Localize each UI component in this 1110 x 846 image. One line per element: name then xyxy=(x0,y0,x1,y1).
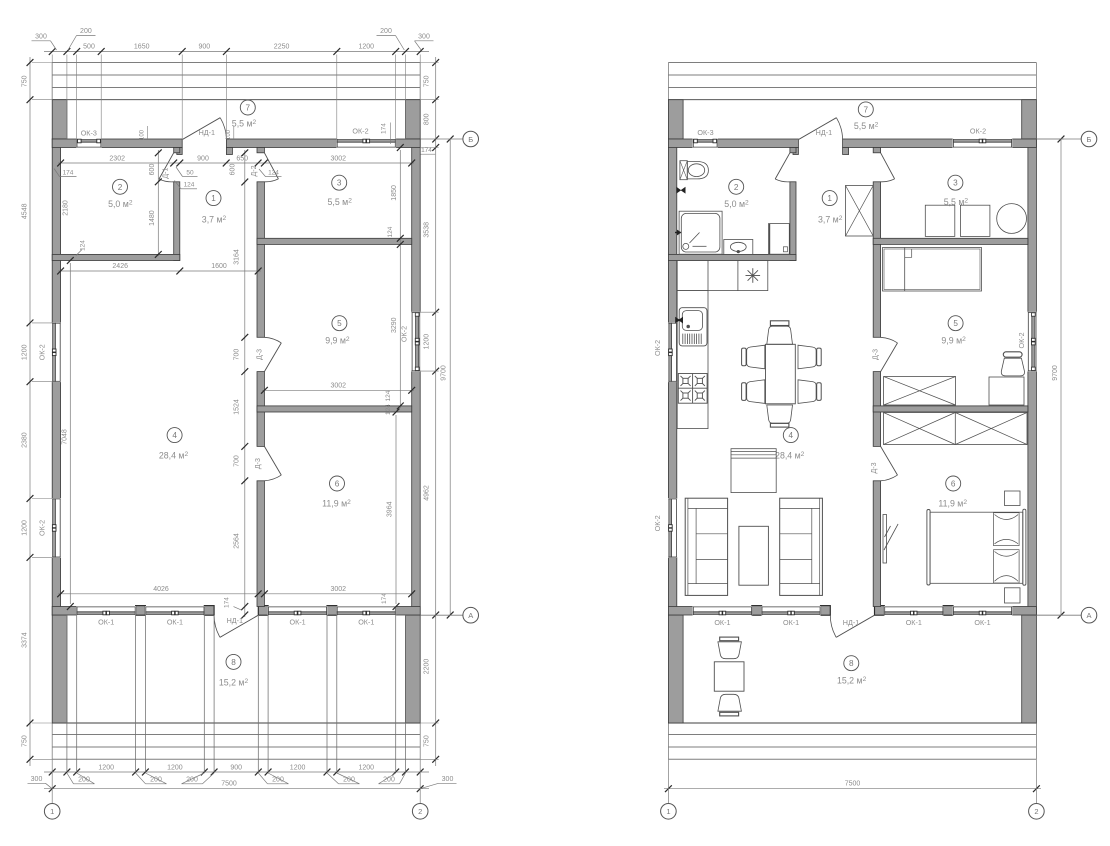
svg-text:300: 300 xyxy=(31,776,43,783)
svg-text:750: 750 xyxy=(424,735,431,747)
svg-text:700: 700 xyxy=(234,455,241,467)
svg-text:900: 900 xyxy=(197,155,209,162)
svg-text:А: А xyxy=(468,611,473,620)
svg-text:200: 200 xyxy=(343,777,355,784)
svg-text:ОК-1: ОК-1 xyxy=(290,618,306,627)
svg-text:28,4 м2: 28,4 м2 xyxy=(775,451,805,461)
svg-text:200: 200 xyxy=(186,777,198,784)
svg-text:11,9 м2: 11,9 м2 xyxy=(322,499,351,509)
svg-text:1200: 1200 xyxy=(22,520,29,536)
svg-text:1850: 1850 xyxy=(391,185,398,201)
svg-text:900: 900 xyxy=(198,44,210,51)
svg-text:ОК-1: ОК-1 xyxy=(783,618,799,627)
svg-text:3164: 3164 xyxy=(234,249,241,265)
svg-text:7500: 7500 xyxy=(845,781,861,788)
svg-text:9700: 9700 xyxy=(1052,365,1059,381)
svg-text:ОК-2: ОК-2 xyxy=(352,127,368,136)
svg-text:3538: 3538 xyxy=(424,222,431,238)
svg-text:8: 8 xyxy=(231,658,236,667)
svg-text:ОК-1: ОК-1 xyxy=(358,618,374,627)
svg-text:7500: 7500 xyxy=(221,781,237,788)
svg-text:3290: 3290 xyxy=(391,317,398,333)
svg-text:ОК-2: ОК-2 xyxy=(400,326,409,342)
svg-text:3: 3 xyxy=(337,179,342,188)
svg-text:3002: 3002 xyxy=(331,586,347,593)
svg-text:Б: Б xyxy=(468,135,473,144)
svg-text:124: 124 xyxy=(184,182,195,189)
svg-text:Д-3: Д-3 xyxy=(257,349,264,360)
svg-text:1600: 1600 xyxy=(211,263,227,270)
svg-text:100: 100 xyxy=(140,129,146,140)
svg-text:ОК-3: ОК-3 xyxy=(81,129,97,138)
svg-text:7048: 7048 xyxy=(61,429,68,445)
svg-text:300: 300 xyxy=(418,34,430,41)
svg-text:650: 650 xyxy=(236,155,248,162)
svg-text:1200: 1200 xyxy=(22,344,29,360)
svg-text:7: 7 xyxy=(246,104,251,113)
svg-text:124: 124 xyxy=(385,390,392,401)
svg-text:ОК-1: ОК-1 xyxy=(906,618,922,627)
svg-text:1200: 1200 xyxy=(98,764,114,771)
svg-text:ОК-3: ОК-3 xyxy=(697,128,713,137)
svg-text:НД-1: НД-1 xyxy=(227,616,243,625)
svg-text:174: 174 xyxy=(381,123,388,134)
svg-text:3374: 3374 xyxy=(22,632,29,648)
svg-text:1: 1 xyxy=(827,194,832,203)
svg-text:1650: 1650 xyxy=(134,44,150,51)
svg-text:ОК-2: ОК-2 xyxy=(38,520,47,536)
svg-text:200: 200 xyxy=(383,777,395,784)
svg-text:2180: 2180 xyxy=(63,200,70,216)
svg-text:15,2 м2: 15,2 м2 xyxy=(837,676,867,686)
svg-text:4026: 4026 xyxy=(153,586,169,593)
svg-text:2: 2 xyxy=(118,183,123,192)
svg-text:4: 4 xyxy=(789,431,794,440)
svg-text:9700: 9700 xyxy=(440,365,447,381)
svg-text:174: 174 xyxy=(381,593,388,604)
svg-text:700: 700 xyxy=(234,349,241,361)
svg-text:ОК-1: ОК-1 xyxy=(974,618,990,627)
svg-text:1200: 1200 xyxy=(424,334,431,350)
svg-text:Д-3: Д-3 xyxy=(873,349,880,360)
svg-text:300: 300 xyxy=(35,34,47,41)
svg-text:8: 8 xyxy=(849,659,854,668)
svg-text:1200: 1200 xyxy=(290,764,306,771)
svg-text:2426: 2426 xyxy=(112,263,128,270)
svg-text:300: 300 xyxy=(442,776,454,783)
svg-text:5: 5 xyxy=(337,319,342,328)
svg-text:750: 750 xyxy=(424,75,431,87)
svg-text:750: 750 xyxy=(22,75,29,87)
svg-text:4548: 4548 xyxy=(22,203,29,219)
svg-text:3002: 3002 xyxy=(331,383,347,390)
svg-text:6: 6 xyxy=(951,480,956,489)
svg-text:3002: 3002 xyxy=(331,155,347,162)
svg-text:1480: 1480 xyxy=(149,210,156,226)
svg-text:4962: 4962 xyxy=(424,485,431,501)
svg-text:3964: 3964 xyxy=(387,501,394,517)
svg-text:750: 750 xyxy=(22,735,29,747)
svg-text:1200: 1200 xyxy=(167,764,183,771)
svg-text:3: 3 xyxy=(953,179,958,188)
svg-text:Д-2: Д-2 xyxy=(251,165,258,176)
svg-text:2380: 2380 xyxy=(22,432,29,448)
svg-text:Д-3: Д-3 xyxy=(255,458,262,469)
svg-text:2302: 2302 xyxy=(109,155,125,162)
svg-text:28,4 м2: 28,4 м2 xyxy=(159,451,189,461)
svg-text:2: 2 xyxy=(418,807,422,816)
svg-text:7: 7 xyxy=(864,105,869,114)
svg-text:500: 500 xyxy=(83,44,95,51)
svg-text:600: 600 xyxy=(149,164,156,176)
svg-text:124: 124 xyxy=(80,240,87,251)
svg-text:ОК-1: ОК-1 xyxy=(167,618,183,627)
svg-text:174: 174 xyxy=(421,147,432,154)
svg-text:5: 5 xyxy=(953,319,958,328)
svg-text:ОК-1: ОК-1 xyxy=(714,618,730,627)
svg-text:1200: 1200 xyxy=(359,44,375,51)
svg-text:ОК-2: ОК-2 xyxy=(38,344,47,360)
svg-text:1524: 1524 xyxy=(234,399,241,415)
svg-text:2200: 2200 xyxy=(424,659,431,675)
svg-text:Д-1: Д-1 xyxy=(163,168,170,179)
svg-text:15,2 м2: 15,2 м2 xyxy=(219,677,249,687)
svg-text:50: 50 xyxy=(186,169,194,176)
svg-text:200: 200 xyxy=(380,28,392,35)
svg-text:2: 2 xyxy=(734,183,739,192)
svg-text:ОК-2: ОК-2 xyxy=(1017,332,1026,348)
svg-text:2: 2 xyxy=(1034,807,1038,816)
svg-text:200: 200 xyxy=(80,28,92,35)
svg-text:11,9 м2: 11,9 м2 xyxy=(938,499,967,509)
svg-text:ОК-2: ОК-2 xyxy=(653,515,662,531)
svg-text:174: 174 xyxy=(223,597,230,608)
svg-text:2564: 2564 xyxy=(234,533,241,549)
svg-text:4: 4 xyxy=(172,431,177,440)
svg-text:124: 124 xyxy=(268,169,279,176)
svg-text:1200: 1200 xyxy=(359,764,375,771)
svg-text:124: 124 xyxy=(385,404,392,415)
svg-text:НД-1: НД-1 xyxy=(816,128,832,137)
svg-text:900: 900 xyxy=(230,764,242,771)
svg-text:А: А xyxy=(1086,611,1091,620)
svg-text:6: 6 xyxy=(335,480,340,489)
svg-text:1: 1 xyxy=(211,194,216,203)
svg-text:НД-1: НД-1 xyxy=(843,618,859,627)
svg-text:Д-3: Д-3 xyxy=(871,462,878,473)
svg-text:800: 800 xyxy=(424,113,431,125)
svg-text:ОК-1: ОК-1 xyxy=(98,618,114,627)
svg-text:100: 100 xyxy=(226,129,232,140)
svg-text:1: 1 xyxy=(666,807,670,816)
svg-text:1: 1 xyxy=(50,807,54,816)
svg-text:ОК-2: ОК-2 xyxy=(970,127,986,136)
svg-text:Б: Б xyxy=(1087,135,1092,144)
svg-text:124: 124 xyxy=(387,226,394,237)
svg-text:2250: 2250 xyxy=(274,44,290,51)
svg-text:НД-1: НД-1 xyxy=(199,128,215,137)
svg-text:600: 600 xyxy=(230,164,237,176)
svg-text:ОК-2: ОК-2 xyxy=(653,340,662,356)
svg-text:174: 174 xyxy=(63,169,74,176)
